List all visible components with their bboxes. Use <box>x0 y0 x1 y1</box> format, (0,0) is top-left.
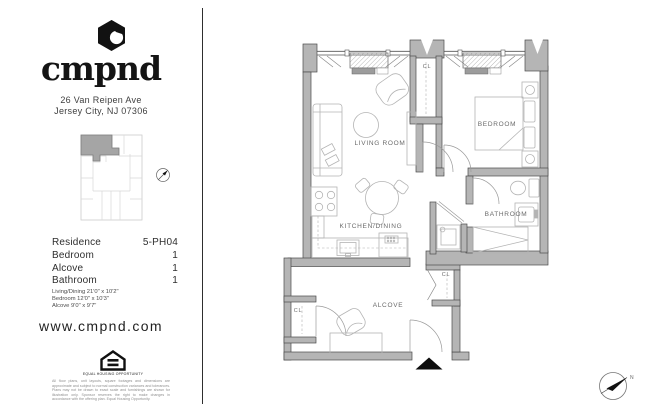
washer <box>437 225 460 249</box>
stove <box>311 187 337 216</box>
armchair <box>373 71 412 109</box>
coffee-table <box>354 113 379 138</box>
ptac-unit <box>350 53 388 74</box>
kitchen-sink <box>337 240 359 257</box>
closet-label: CL <box>294 308 302 314</box>
nightstand <box>522 151 538 167</box>
sofa <box>313 104 342 176</box>
closet-label: CL <box>442 272 450 278</box>
ptac-unit <box>463 53 501 74</box>
kitchen-dining-label: KITCHEN/DINING <box>340 223 403 230</box>
floor-plan: LIVING ROOM BEDROOM KITCHEN/DINING BATHR… <box>0 0 652 416</box>
bathroom-label: BATHROOM <box>485 211 528 218</box>
floorplan-sheet: cmpnd 26 Van Reipen Ave Jersey City, NJ … <box>0 0 652 416</box>
nightstand <box>522 82 538 98</box>
bathtub <box>473 227 528 253</box>
keyplan-compass-icon <box>157 169 170 182</box>
closet-label: CL <box>423 64 431 70</box>
north-label: N <box>630 375 634 381</box>
bedroom-label: BEDROOM <box>478 121 517 128</box>
walls <box>284 40 548 360</box>
alcove-label: ALCOVE <box>373 302 404 309</box>
north-compass-icon: N <box>600 373 635 400</box>
refrigerator <box>379 233 407 257</box>
entry-arrow-icon <box>416 358 443 370</box>
living-room-label: LIVING ROOM <box>354 140 405 147</box>
dashed-guides <box>302 62 447 334</box>
desk <box>330 333 382 353</box>
toilet <box>511 179 540 197</box>
dining-table <box>354 177 409 225</box>
